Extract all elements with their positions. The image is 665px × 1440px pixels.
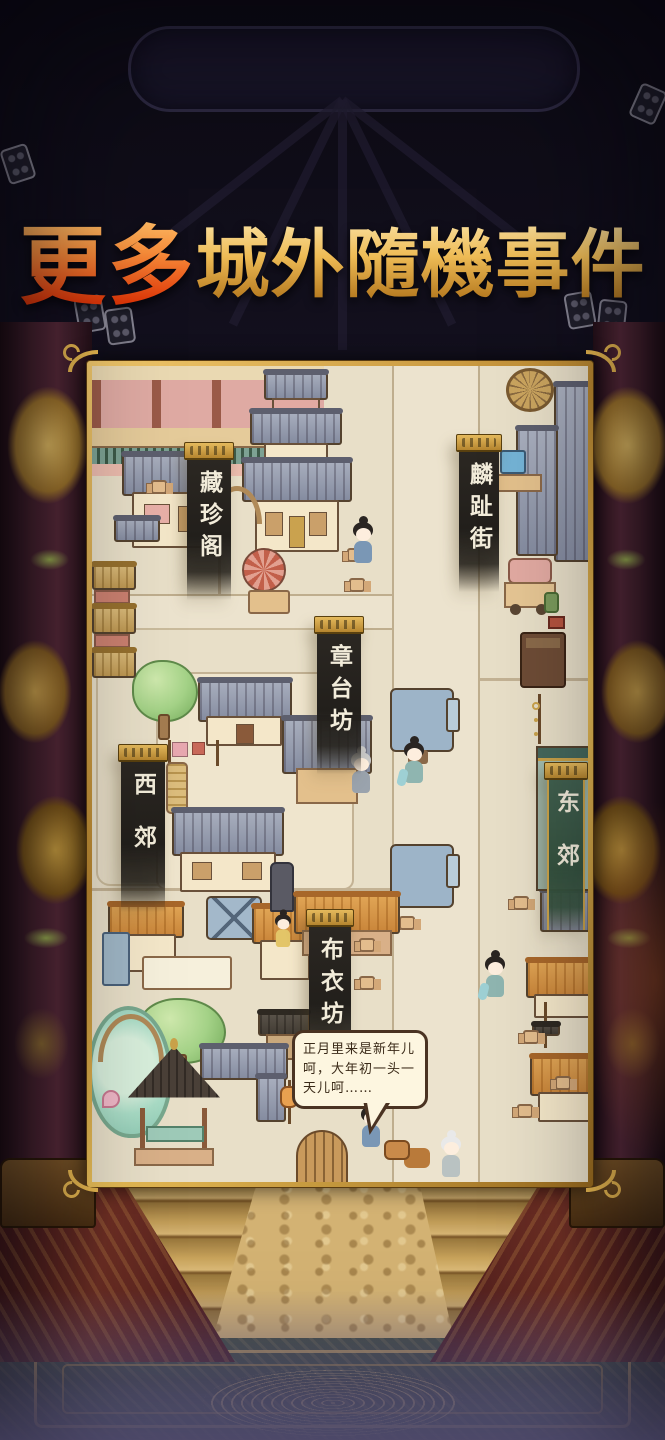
npc-villager[interactable] [401, 738, 427, 788]
banner-label: 东郊 [555, 790, 578, 896]
red-crate [548, 616, 565, 629]
headline-accent: 更多 [20, 196, 196, 321]
promo-headline: 更多城外隨機事件 [0, 196, 665, 321]
banner-dong-jiao: 东郊 [544, 762, 588, 930]
banner-cap [456, 434, 502, 452]
banner-cap [314, 616, 364, 634]
shop-roof [554, 382, 588, 562]
speech-line: 天儿呵…… [303, 1079, 417, 1099]
straw-roof [92, 604, 136, 634]
shop-roof [526, 958, 588, 998]
dragon-pillar-left [0, 322, 92, 1202]
pillar-pedestal-left [0, 1158, 96, 1228]
pavilion-rail [146, 1126, 204, 1142]
pagoda-hall [255, 500, 339, 552]
npc-child[interactable] [273, 911, 294, 951]
banner-cap [544, 762, 588, 780]
temple-plaque [128, 26, 580, 112]
barrel [544, 592, 559, 613]
mahjong-tile-icon [0, 143, 37, 186]
mahjong-tile-icon [628, 82, 665, 126]
cart-canopy [508, 558, 552, 584]
hanging-cloth [192, 742, 205, 755]
npc-villager[interactable] [350, 518, 376, 568]
straw-roof [92, 562, 136, 590]
screenshot-stage: 更多城外隨機事件 [0, 0, 665, 1440]
headline-main: 城外隨機事件 [196, 205, 646, 312]
pagoda-roof-main [242, 458, 352, 502]
hanging-cloth [172, 742, 188, 757]
screenshot-frame: 藏珍阁 麟趾街 章台坊 西郊 东郊 布衣坊 [86, 360, 594, 1188]
hanging-pole [538, 694, 541, 744]
street-table [508, 892, 534, 914]
pagoda-roof-top [264, 370, 328, 400]
courtyard-house-roof [172, 808, 284, 856]
street-table [354, 972, 380, 994]
shop-counter [496, 474, 542, 492]
shop-flag [102, 932, 130, 986]
straw-tower-wall [94, 590, 130, 604]
banner-cangzhen-ge: 藏珍阁 [184, 442, 234, 600]
porch-roof [114, 516, 160, 542]
street-table [518, 1026, 544, 1048]
stall-booth [520, 632, 566, 688]
banner-linzhi-jie: 麟趾街 [456, 434, 502, 592]
banner-cap [118, 744, 168, 762]
straw-roof [92, 648, 136, 678]
pavilion-posts [140, 1108, 145, 1150]
shop-wall [534, 994, 588, 1018]
banner-xi-jiao: 西郊 [118, 744, 168, 912]
npc-grandma[interactable] [438, 1132, 464, 1182]
speech-bubble: 正月里来是新年儿 呵，大年初一头一 天儿呵…… [292, 1030, 428, 1109]
firewood-bundles [384, 1140, 410, 1160]
street-table [344, 574, 370, 596]
speech-line: 呵，大年初一头一 [303, 1060, 417, 1080]
boat-bow [296, 1130, 348, 1182]
street-table [354, 934, 380, 956]
scroll-stand [142, 956, 232, 990]
banner-cap [306, 909, 354, 927]
corner-flourish-icon [586, 350, 616, 372]
street-table [550, 1072, 576, 1094]
banner-label: 布衣坊 [319, 937, 342, 1033]
corner-flourish-icon [68, 350, 98, 372]
banner-zhangtai-fang: 章台坊 [314, 616, 364, 774]
cart-wheel [510, 604, 521, 615]
tree-trunk [158, 714, 170, 740]
banner-label: 藏珍阁 [198, 470, 221, 566]
banner-cap [184, 442, 234, 460]
banner-label: 西郊 [132, 772, 155, 878]
pavilion-base [134, 1148, 214, 1166]
chimney [270, 862, 294, 912]
pagoda-roof-mid [250, 409, 342, 445]
waterwheel [506, 368, 554, 412]
courtyard-house-wall [180, 852, 276, 892]
courtyard-house-wall [206, 716, 282, 746]
speech-line: 正月里来是新年儿 [303, 1040, 417, 1060]
banner-label: 章台坊 [328, 644, 351, 740]
street-table [146, 476, 172, 498]
tree [132, 660, 198, 722]
tea-counter [248, 590, 290, 614]
pavilion-finial [170, 1038, 178, 1050]
shop-sign-blue [500, 450, 526, 474]
tea-parasol [242, 548, 286, 592]
shop-wall [538, 1092, 588, 1122]
town-map-viewport[interactable]: 藏珍阁 麟趾街 章台坊 西郊 东郊 布衣坊 [92, 366, 588, 1182]
street-table [512, 1100, 538, 1122]
hanging-rings [532, 702, 540, 710]
lotus-flower [102, 1090, 120, 1108]
straw-tower-wall [94, 634, 130, 648]
corner-flourish-icon [68, 1170, 98, 1192]
corner-flourish-icon [586, 1170, 616, 1192]
npc-villager[interactable] [482, 952, 508, 1002]
banner-label: 麟趾街 [468, 462, 491, 558]
